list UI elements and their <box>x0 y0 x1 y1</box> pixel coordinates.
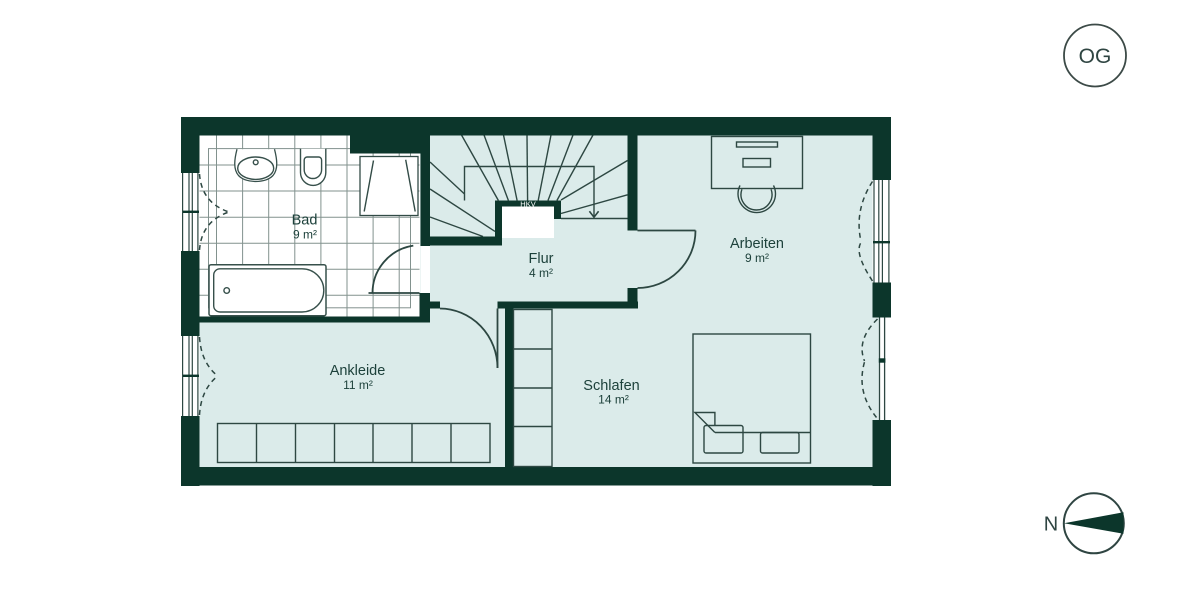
svg-text:Bad: Bad <box>292 212 318 228</box>
svg-text:Ankleide: Ankleide <box>330 363 386 379</box>
svg-text:OG: OG <box>1079 45 1112 68</box>
svg-text:9 m²: 9 m² <box>745 251 769 265</box>
svg-text:N: N <box>1044 514 1058 536</box>
svg-text:9 m²: 9 m² <box>293 227 317 241</box>
svg-text:4 m²: 4 m² <box>529 266 553 280</box>
svg-text:Arbeiten: Arbeiten <box>730 236 784 252</box>
svg-text:Flur: Flur <box>529 251 554 267</box>
svg-text:14 m²: 14 m² <box>598 393 629 407</box>
svg-text:HKV: HKV <box>520 199 535 208</box>
svg-text:11 m²: 11 m² <box>343 378 373 392</box>
